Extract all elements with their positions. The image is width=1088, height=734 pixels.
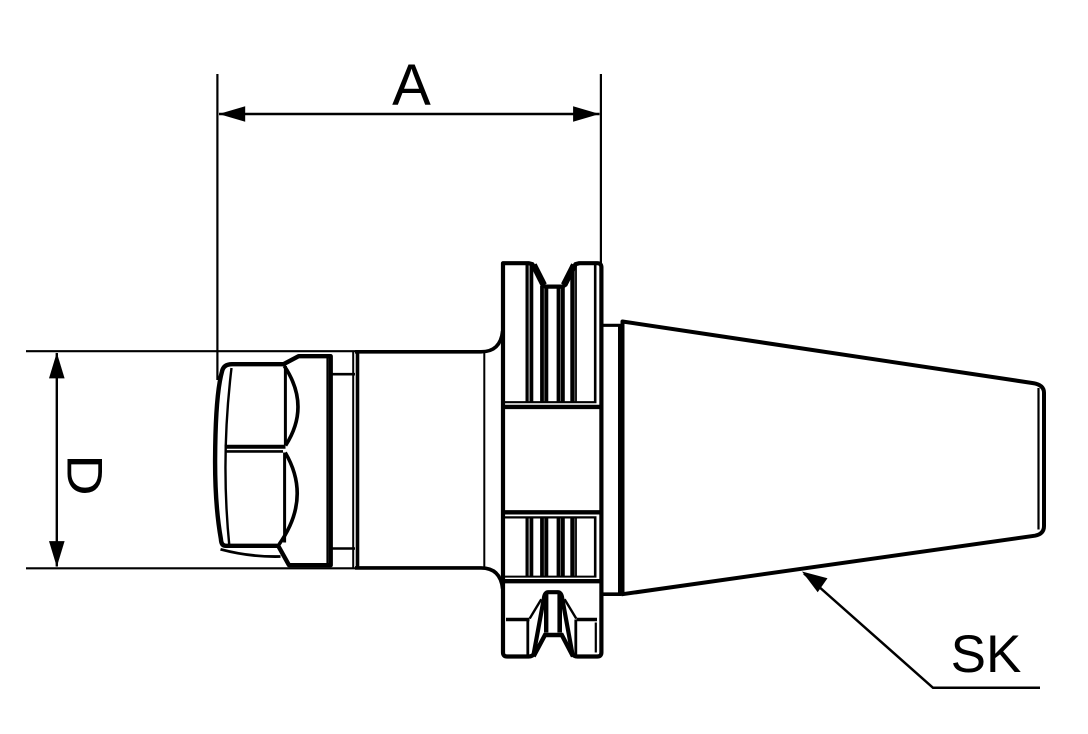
svg-text:A: A bbox=[392, 53, 431, 118]
svg-text:D: D bbox=[56, 454, 112, 496]
svg-text:SK: SK bbox=[951, 625, 1022, 684]
